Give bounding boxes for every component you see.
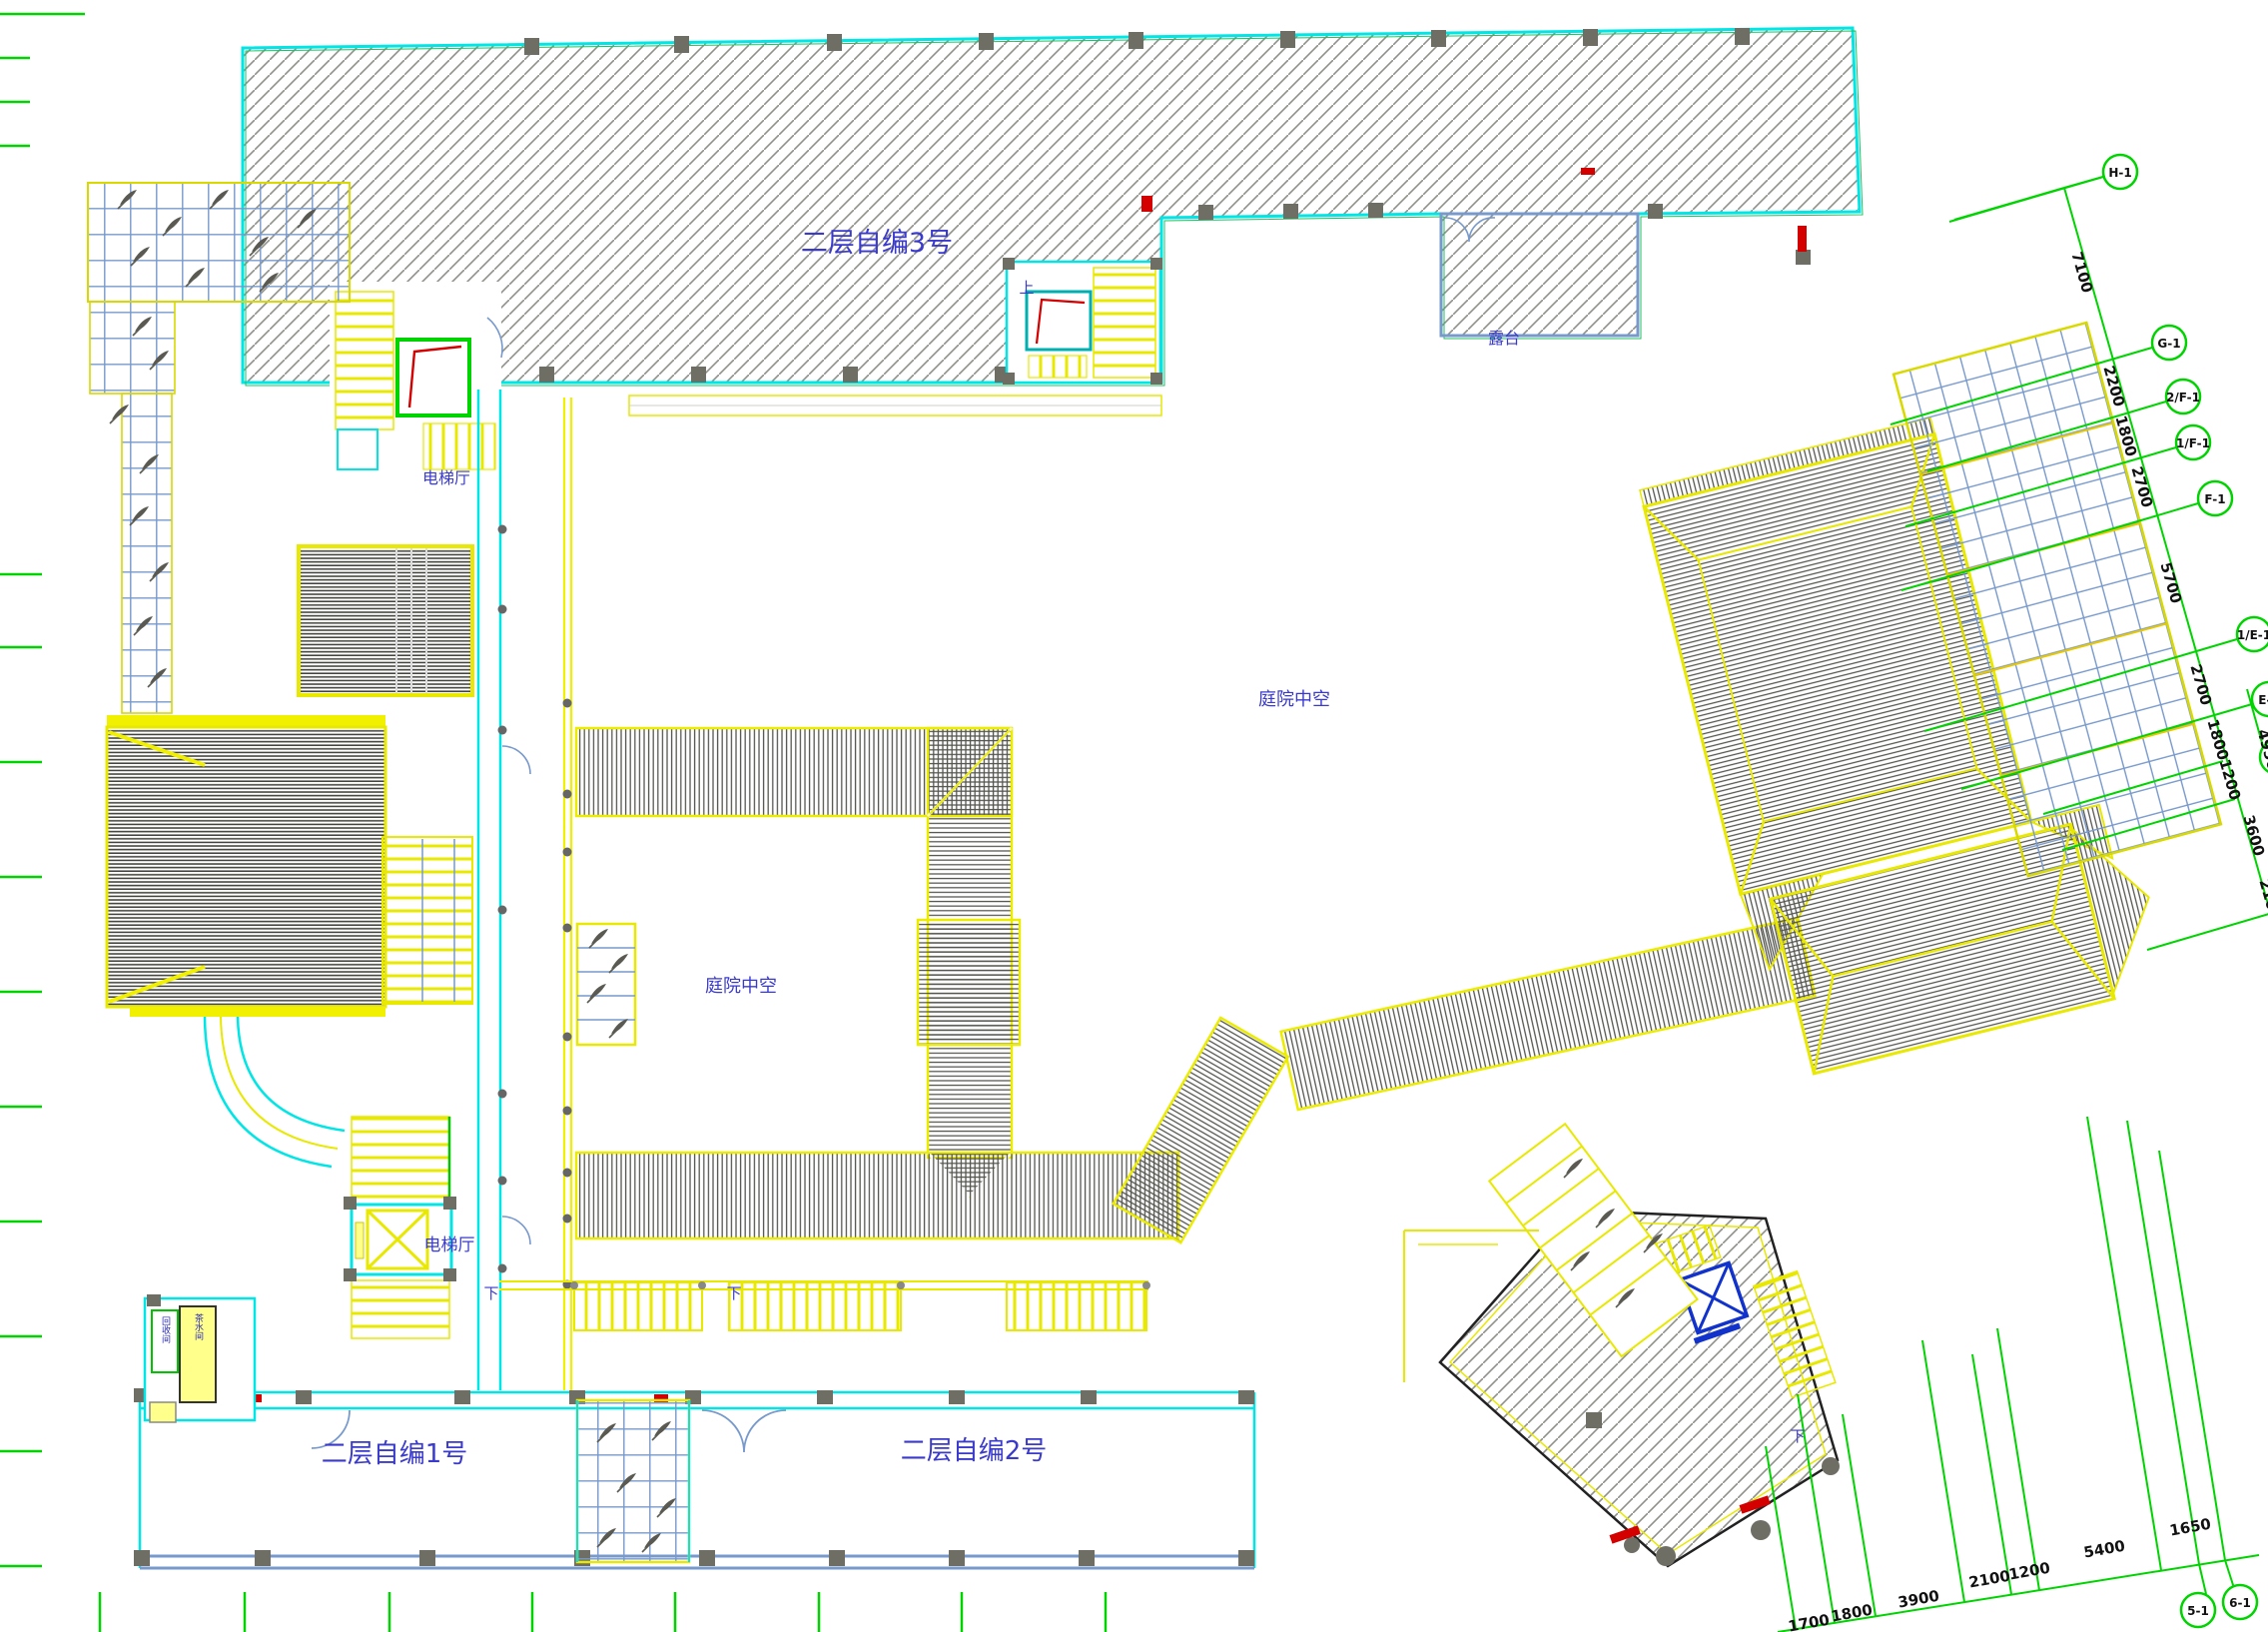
bottom-margin-ticks	[100, 1592, 1106, 1632]
label-elevator-hall-left: 电梯厅	[424, 1235, 475, 1255]
roof-surface	[107, 727, 385, 1007]
axis-label-61: 6-1	[2229, 1596, 2251, 1610]
label-courtyard-west: 庭院中空	[705, 976, 777, 997]
walkway-roof-bump	[918, 920, 1020, 1045]
courtyard-pergola-square	[577, 924, 635, 1045]
axis-circles-bottom: 5-1 6-1	[2181, 1585, 2257, 1627]
double-door-arcs	[702, 1410, 786, 1452]
label-down-1: 下	[483, 1284, 498, 1302]
stair-treads	[336, 292, 393, 429]
curved-walk-inner	[238, 1017, 345, 1131]
dim-2100b: 2100	[1967, 1567, 2011, 1592]
walkway-roof-diagonal-b	[1281, 918, 1816, 1110]
dim-2700b: 2700	[2186, 662, 2215, 707]
axis-label-f1: F-1	[2204, 492, 2225, 506]
axis-label-e1: E-1	[2258, 693, 2268, 707]
left-hip-roof	[107, 715, 472, 1167]
dim-1800b2: 1800	[1830, 1601, 1874, 1626]
floor-plan-drawing: H-1 G-1 2/F-1 1/F-1 F-1 1/E-1 E-1 7100 2…	[0, 0, 2268, 1632]
stair-core-top	[1003, 258, 1162, 385]
walkway-treads-2	[729, 1282, 901, 1330]
label-tea-room: 茶水间	[193, 1312, 204, 1341]
door-red-mark	[1798, 226, 1807, 252]
axis-label-2f1: 2/F-1	[2166, 391, 2200, 405]
label-building-2: 二层自编2号	[901, 1436, 1048, 1466]
label-elevator-hall-top: 电梯厅	[422, 468, 470, 487]
label-courtyard-center: 庭院中空	[1258, 689, 1330, 710]
axis-label-1e1: 1/E-1	[2237, 628, 2268, 642]
atrium-grid	[577, 1400, 689, 1562]
stairs-below	[352, 1280, 449, 1338]
columns-building-1-2	[134, 1388, 1254, 1566]
axis-label-g1: G-1	[2157, 337, 2180, 351]
dim-1650: 1650	[2168, 1515, 2212, 1540]
label-down-2: 下	[726, 1284, 741, 1302]
elevator-core-top	[330, 282, 502, 477]
label-down-3: 下	[1790, 1427, 1805, 1445]
elevator-core-left	[344, 1117, 456, 1338]
dim-4950: 4950	[2253, 727, 2268, 772]
cad-floor-plan-canvas[interactable]: H-1 G-1 2/F-1 1/F-1 F-1 1/E-1 E-1 7100 2…	[0, 0, 2268, 1632]
left-margin-ticks	[0, 14, 85, 1566]
label-building-3: 二层自编3号	[801, 228, 953, 259]
walkway-roof-south	[576, 1153, 1178, 1238]
courtyard-west-edge	[563, 398, 572, 1390]
axis-grid-bottom	[1766, 1117, 2259, 1632]
axis-label-1f1: 1/F-1	[2176, 436, 2210, 450]
stairs-above	[352, 1117, 449, 1205]
axis-label-h1: H-1	[2108, 166, 2131, 180]
walkway-treads-3	[1007, 1282, 1146, 1330]
stair-treads	[1094, 268, 1155, 378]
walkway-roof-diagonal-a	[1114, 1018, 1288, 1242]
dim-1200b: 1200	[2007, 1559, 2051, 1584]
label-terrace: 露台	[1488, 329, 1520, 348]
label-recycle-room: 回收间	[160, 1316, 171, 1344]
walkway-treads-1	[574, 1282, 702, 1330]
fire-hydrant-mark	[1141, 196, 1152, 212]
dim-3600: 3600	[2239, 813, 2268, 858]
building-1-2	[134, 1281, 1254, 1568]
label-building-1: 二层自编1号	[322, 1439, 468, 1469]
central-corridor	[478, 390, 530, 1390]
dim-5400: 5400	[2082, 1537, 2126, 1562]
dim-7100: 7100	[2067, 250, 2096, 295]
red-tick	[1581, 168, 1595, 175]
dim-1800b: 1800	[2203, 717, 2232, 762]
axis-label-51: 5-1	[2187, 1604, 2209, 1618]
side-stairs	[382, 837, 472, 1004]
label-up: 上	[1019, 279, 1034, 297]
elevator-shaft	[397, 340, 469, 415]
dim-1200: 1200	[2215, 757, 2244, 802]
escalator-block	[299, 546, 472, 695]
